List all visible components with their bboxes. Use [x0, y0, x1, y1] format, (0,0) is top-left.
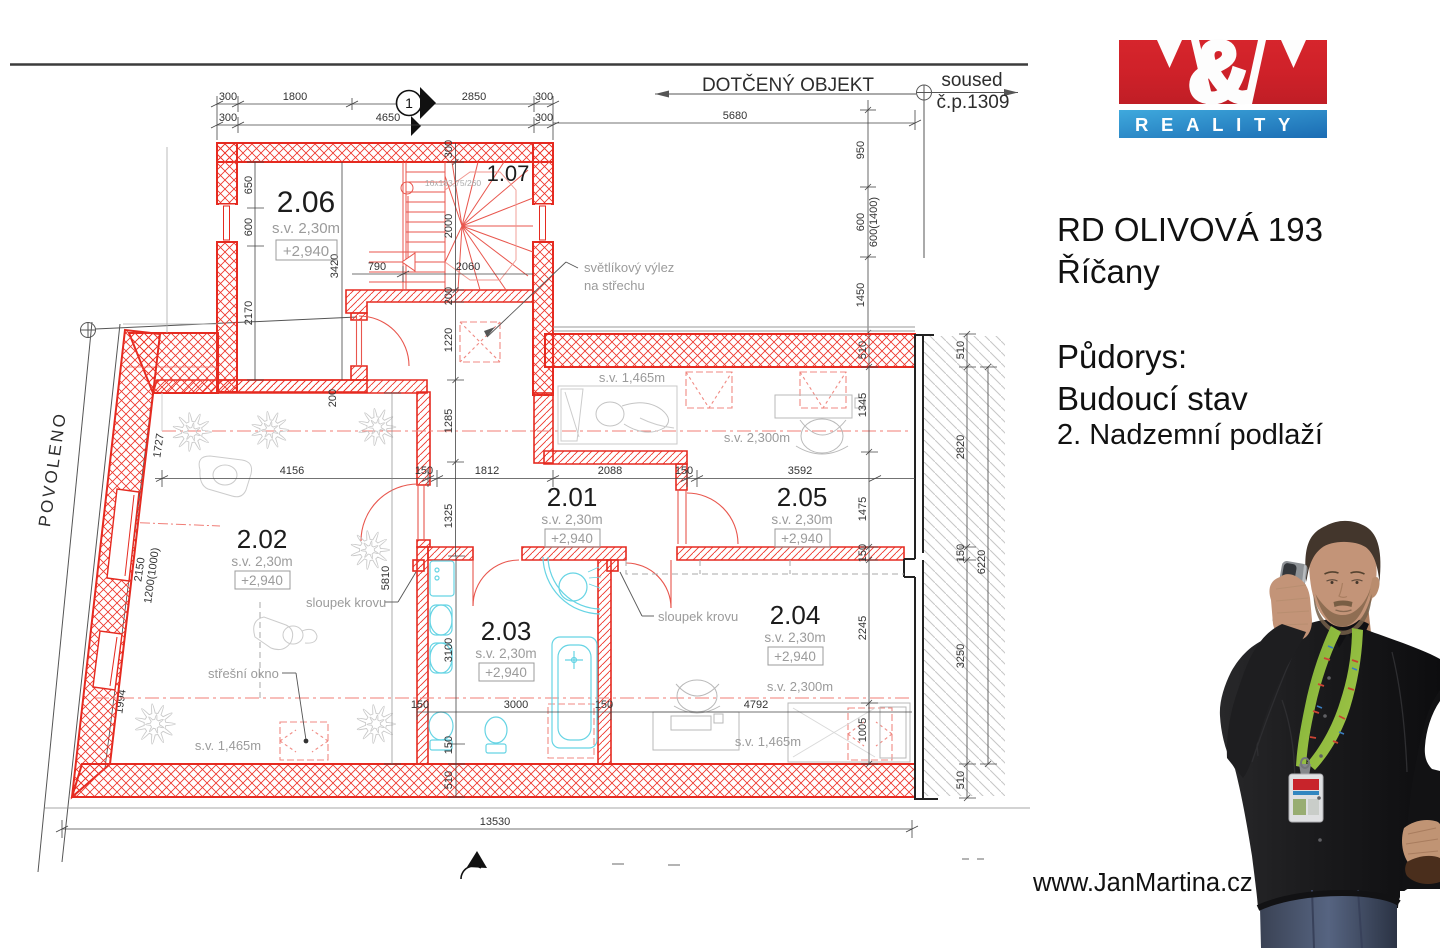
svg-text:300: 300: [443, 140, 455, 158]
svg-text:RD OLIVOVÁ 193: RD OLIVOVÁ 193: [1057, 211, 1323, 248]
svg-text:2820: 2820: [955, 435, 967, 459]
svg-text:150: 150: [415, 465, 433, 477]
svg-text:3420: 3420: [329, 254, 341, 278]
svg-text:3000: 3000: [504, 699, 528, 711]
svg-text:300: 300: [535, 91, 553, 103]
svg-text:s.v. 1,465m: s.v. 1,465m: [599, 370, 665, 385]
svg-text:s.v. 2,30m: s.v. 2,30m: [475, 646, 536, 661]
svg-text:2000: 2000: [443, 214, 455, 238]
svg-text:3592: 3592: [788, 465, 812, 477]
svg-text:3250: 3250: [955, 644, 967, 668]
svg-text:REALITY: REALITY: [1135, 114, 1303, 135]
svg-text:Půdorys:: Půdorys:: [1057, 338, 1187, 375]
svg-text:2.06: 2.06: [277, 186, 335, 219]
svg-text:1475: 1475: [857, 497, 869, 521]
svg-text:s.v. 2,300m: s.v. 2,300m: [767, 679, 833, 694]
svg-text:2.03: 2.03: [481, 616, 532, 646]
svg-text:+2,940: +2,940: [781, 531, 823, 546]
svg-text:2.05: 2.05: [777, 482, 828, 512]
svg-text:1005: 1005: [857, 718, 869, 742]
svg-text:s.v. 1,465m: s.v. 1,465m: [195, 738, 261, 753]
svg-text:4650: 4650: [376, 112, 400, 124]
svg-text:16x183,75/260: 16x183,75/260: [425, 178, 482, 188]
svg-text:2. Nadzemní podlaží: 2. Nadzemní podlaží: [1057, 419, 1323, 451]
svg-text:5810: 5810: [380, 566, 392, 590]
svg-text:4156: 4156: [280, 465, 304, 477]
svg-text:2245: 2245: [857, 616, 869, 640]
svg-text:1: 1: [405, 95, 413, 111]
svg-text:150: 150: [411, 699, 429, 711]
svg-text:150: 150: [443, 736, 455, 754]
svg-text:světlíkový výlez: světlíkový výlez: [584, 260, 674, 275]
svg-text:na střechu: na střechu: [584, 278, 645, 293]
svg-text:s.v. 2,30m: s.v. 2,30m: [541, 512, 602, 527]
svg-text:Říčany: Říčany: [1057, 253, 1160, 290]
svg-text:13530: 13530: [480, 816, 511, 828]
svg-text:300: 300: [535, 112, 553, 124]
svg-text:střešní okno: střešní okno: [208, 666, 279, 681]
svg-text:5680: 5680: [723, 110, 747, 122]
svg-text:650: 650: [243, 176, 255, 194]
svg-text:300: 300: [219, 112, 237, 124]
svg-text:&: &: [1188, 24, 1250, 120]
svg-text:s.v. 2,30m: s.v. 2,30m: [272, 220, 340, 237]
svg-text:200: 200: [443, 287, 455, 305]
svg-text:2.01: 2.01: [547, 482, 598, 512]
svg-text:+2,940: +2,940: [774, 649, 816, 664]
svg-text:950: 950: [855, 141, 867, 159]
svg-text:510: 510: [443, 771, 455, 789]
svg-text:+2,940: +2,940: [241, 573, 283, 588]
svg-text:soused: soused: [941, 70, 1002, 91]
svg-text:200: 200: [327, 389, 339, 407]
svg-text:1.07: 1.07: [487, 161, 530, 186]
svg-text:2088: 2088: [598, 465, 622, 477]
svg-text:510: 510: [955, 341, 967, 359]
svg-text:3100: 3100: [443, 638, 455, 662]
svg-text:1812: 1812: [475, 465, 499, 477]
svg-text:1800: 1800: [283, 91, 307, 103]
svg-text:600(1400): 600(1400): [868, 197, 880, 247]
svg-text:2.02: 2.02: [237, 524, 288, 554]
svg-text:2.04: 2.04: [770, 600, 821, 630]
svg-text:+2,940: +2,940: [551, 531, 593, 546]
svg-text:s.v. 2,30m: s.v. 2,30m: [771, 512, 832, 527]
svg-text:s.v. 1,465m: s.v. 1,465m: [735, 734, 801, 749]
svg-text:+2,940: +2,940: [283, 243, 329, 260]
svg-text:sloupek krovu: sloupek krovu: [306, 595, 386, 610]
svg-text:150: 150: [955, 544, 967, 562]
svg-text:6220: 6220: [976, 550, 988, 574]
svg-text:790: 790: [368, 261, 386, 273]
svg-text:4792: 4792: [744, 699, 768, 711]
svg-text:1450: 1450: [855, 283, 867, 307]
svg-text:150: 150: [857, 544, 869, 562]
svg-text:s.v. 2,30m: s.v. 2,30m: [764, 630, 825, 645]
svg-text:510: 510: [955, 771, 967, 789]
svg-text:600: 600: [243, 218, 255, 236]
svg-text:1325: 1325: [443, 504, 455, 528]
svg-text:+2,940: +2,940: [485, 665, 527, 680]
svg-text:Budoucí stav: Budoucí stav: [1057, 380, 1248, 417]
svg-text:1285: 1285: [443, 409, 455, 433]
svg-text:sloupek krovu: sloupek krovu: [658, 609, 738, 624]
svg-text:150: 150: [675, 465, 693, 477]
svg-text:600: 600: [855, 213, 867, 231]
svg-text:2060: 2060: [456, 261, 480, 273]
svg-text:2170: 2170: [243, 301, 255, 325]
svg-text:2850: 2850: [462, 91, 486, 103]
svg-text:300: 300: [219, 91, 237, 103]
svg-text:č.p.1309: č.p.1309: [937, 92, 1010, 113]
svg-text:s.v. 2,30m: s.v. 2,30m: [231, 554, 292, 569]
svg-text:510: 510: [857, 341, 869, 359]
svg-text:s.v. 2,300m: s.v. 2,300m: [724, 430, 790, 445]
svg-text:DOTČENÝ OBJEKT: DOTČENÝ OBJEKT: [702, 74, 874, 96]
svg-text:1220: 1220: [443, 328, 455, 352]
svg-text:1345: 1345: [857, 393, 869, 417]
svg-text:www.JanMartina.cz: www.JanMartina.cz: [1032, 869, 1253, 897]
svg-text:150: 150: [595, 699, 613, 711]
